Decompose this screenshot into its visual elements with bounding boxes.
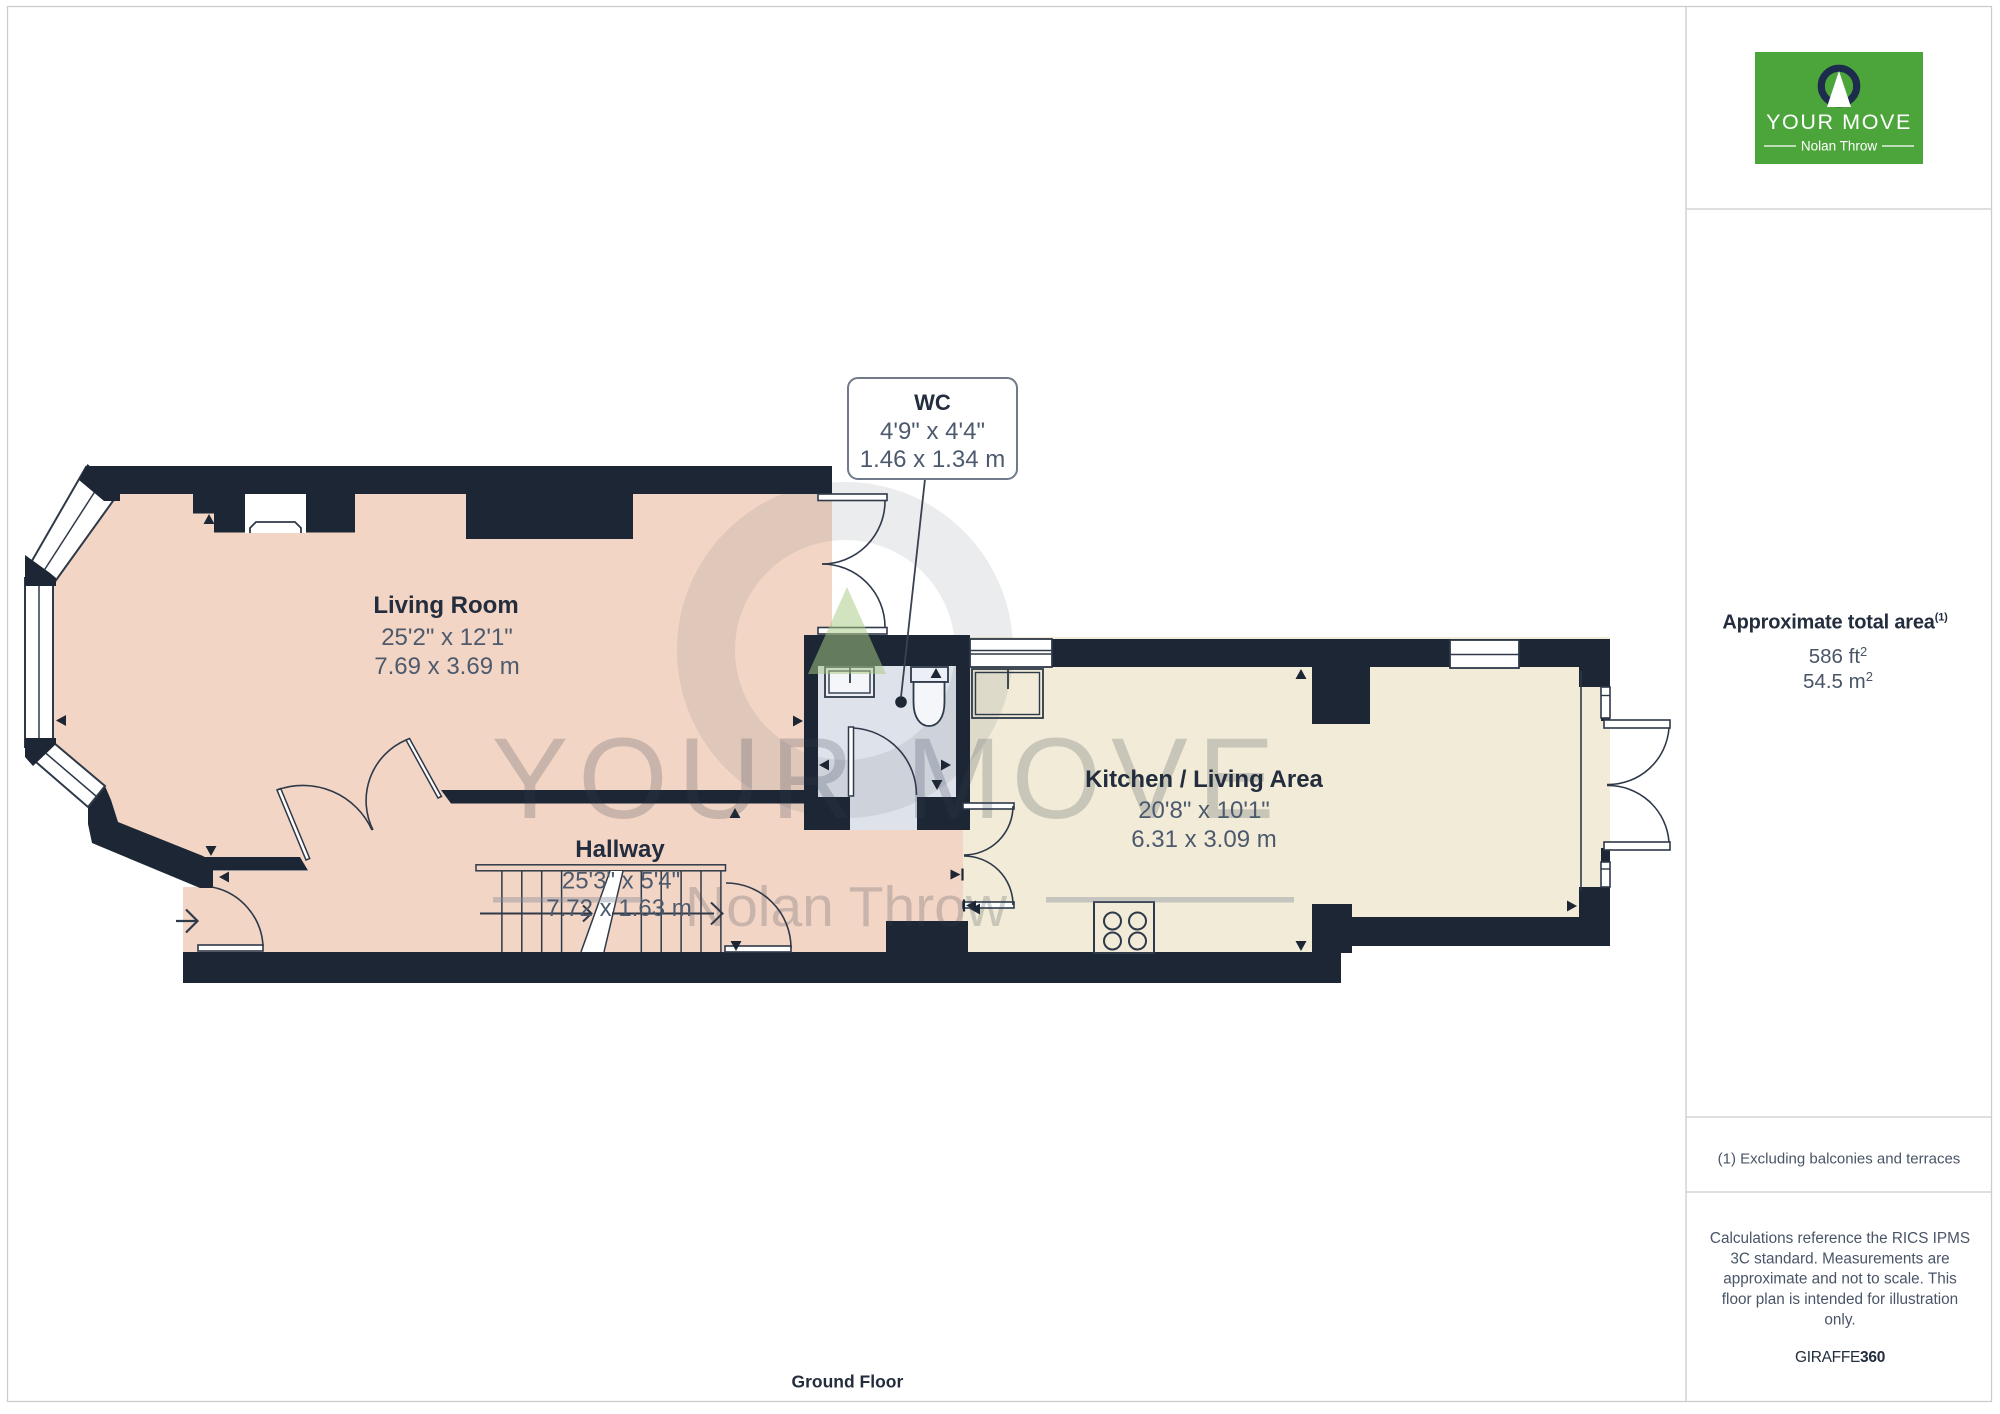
svg-text:25'3" x 5'4": 25'3" x 5'4" — [562, 868, 680, 895]
svg-text:1.46 x 1.34 m: 1.46 x 1.34 m — [860, 446, 1005, 473]
svg-text:Nolan Throw: Nolan Throw — [685, 875, 1008, 939]
svg-text:GIRAFFE360: GIRAFFE360 — [1795, 1349, 1885, 1366]
svg-text:(1) Excluding balconies and te: (1) Excluding balconies and terraces — [1718, 1151, 1961, 1168]
svg-text:Approximate total area(1): Approximate total area(1) — [1722, 612, 1948, 634]
svg-text:Kitchen / Living Area: Kitchen / Living Area — [1085, 766, 1323, 793]
svg-text:4'9" x 4'4": 4'9" x 4'4" — [880, 418, 985, 445]
svg-text:3C standard. Measurements are: 3C standard. Measurements are — [1730, 1251, 1949, 1268]
svg-text:approximate and not to scale.: approximate and not to scale. This — [1723, 1271, 1957, 1288]
svg-text:Nolan Throw: Nolan Throw — [1801, 139, 1878, 154]
svg-text:floor plan is intended for ill: floor plan is intended for illustration — [1722, 1291, 1958, 1308]
svg-text:Ground Floor: Ground Floor — [792, 1372, 904, 1392]
svg-text:only.: only. — [1824, 1312, 1855, 1329]
svg-text:6.31 x 3.09 m: 6.31 x 3.09 m — [1131, 826, 1276, 853]
svg-text:Living Room: Living Room — [373, 592, 518, 619]
svg-text:WC: WC — [914, 390, 951, 415]
svg-text:25'2" x 12'1": 25'2" x 12'1" — [381, 624, 513, 651]
svg-text:586 ft2: 586 ft2 — [1809, 644, 1868, 668]
svg-text:7.72 x 1.63 m: 7.72 x 1.63 m — [546, 895, 691, 922]
svg-text:Calculations reference the RIC: Calculations reference the RICS IPMS — [1710, 1230, 1970, 1247]
svg-text:Hallway: Hallway — [575, 836, 665, 863]
svg-text:54.5 m2: 54.5 m2 — [1803, 669, 1873, 693]
svg-text:20'8" x 10'1": 20'8" x 10'1" — [1138, 797, 1270, 824]
svg-text:YOUR MOVE: YOUR MOVE — [1766, 110, 1912, 134]
svg-text:7.69 x 3.69 m: 7.69 x 3.69 m — [374, 653, 519, 680]
